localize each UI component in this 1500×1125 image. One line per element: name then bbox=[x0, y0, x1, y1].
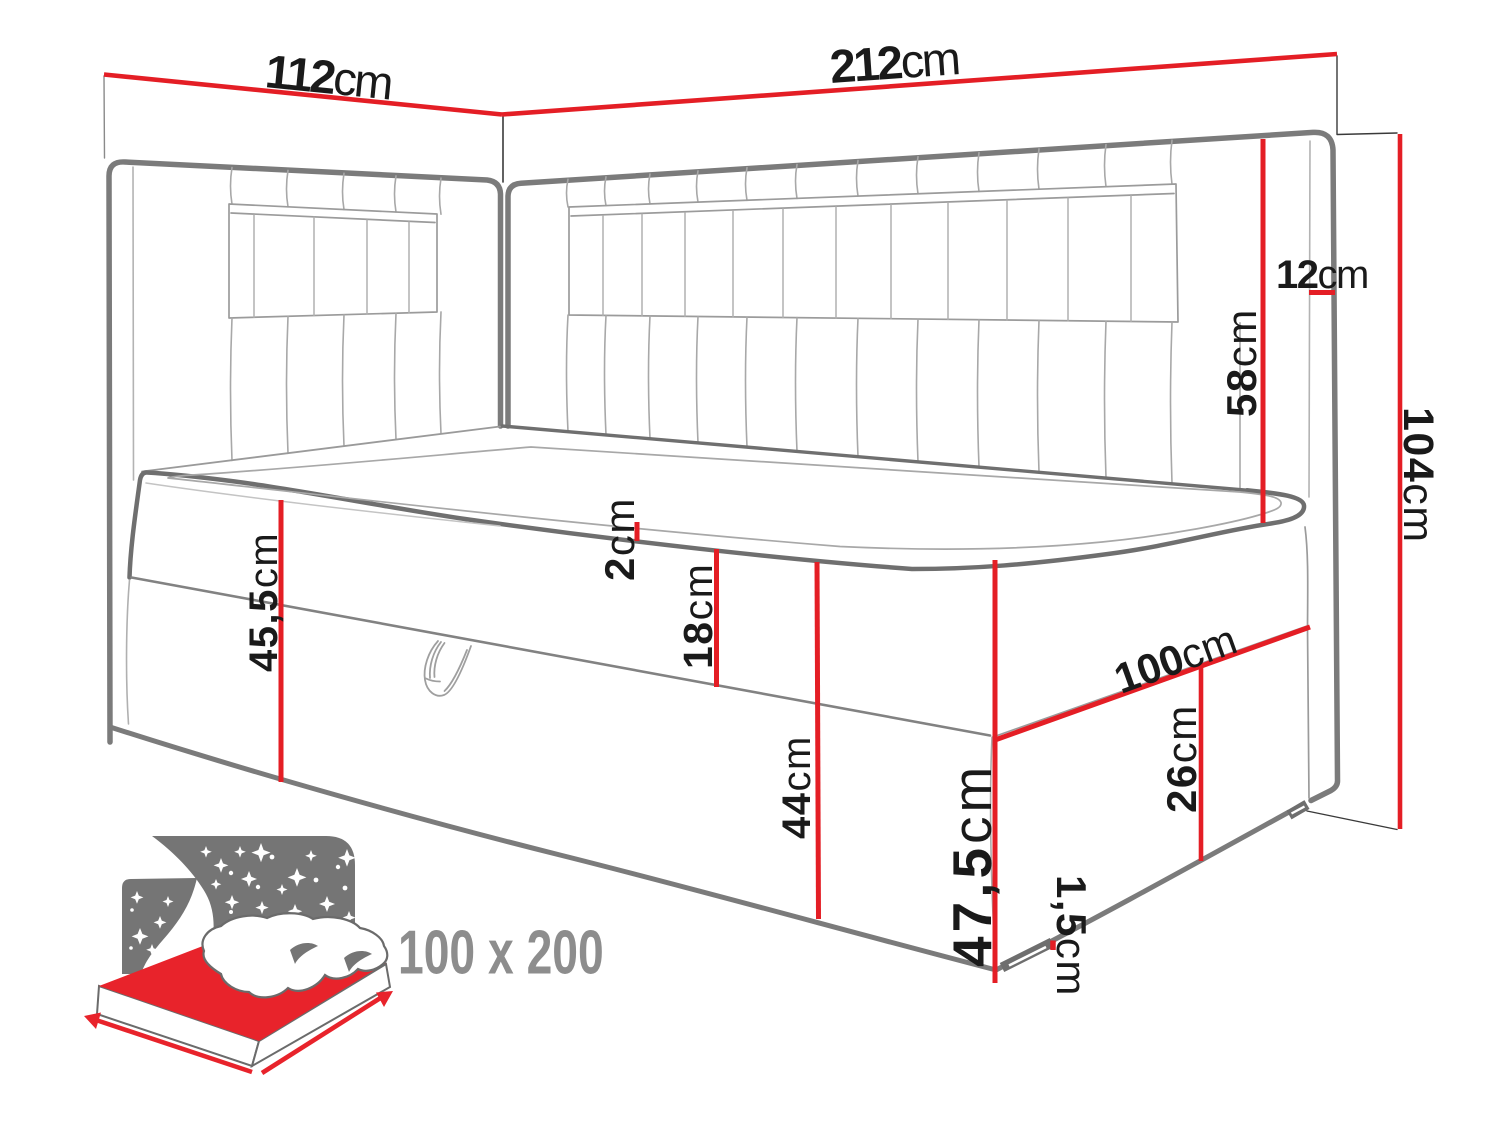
svg-text:45,5cm: 45,5cm bbox=[242, 532, 286, 672]
svg-text:1,5cm: 1,5cm bbox=[1048, 875, 1095, 997]
svg-text:12cm: 12cm bbox=[1276, 253, 1368, 297]
svg-text:47,5cm: 47,5cm bbox=[941, 763, 1003, 967]
svg-text:26cm: 26cm bbox=[1158, 704, 1205, 813]
svg-text:104cm: 104cm bbox=[1394, 407, 1442, 544]
svg-text:44cm: 44cm bbox=[775, 735, 819, 839]
svg-text:18cm: 18cm bbox=[675, 563, 721, 669]
svg-text:100 x 200: 100 x 200 bbox=[398, 917, 604, 987]
svg-text:212cm: 212cm bbox=[828, 31, 960, 93]
svg-text:58cm: 58cm bbox=[1218, 308, 1265, 417]
svg-text:2cm: 2cm bbox=[596, 497, 643, 581]
